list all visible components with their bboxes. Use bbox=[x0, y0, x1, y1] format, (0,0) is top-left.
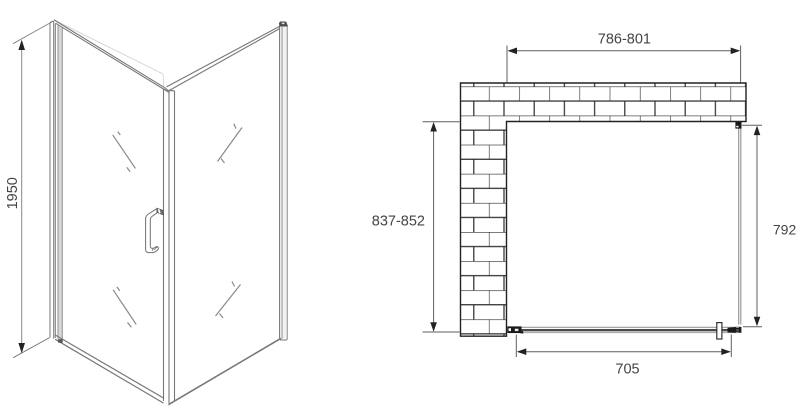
svg-text:705: 705 bbox=[615, 362, 639, 378]
svg-text:786-801: 786-801 bbox=[598, 32, 651, 48]
svg-text:837-852: 837-852 bbox=[372, 214, 425, 230]
svg-text:1950: 1950 bbox=[5, 177, 21, 209]
svg-text:792: 792 bbox=[773, 222, 797, 238]
